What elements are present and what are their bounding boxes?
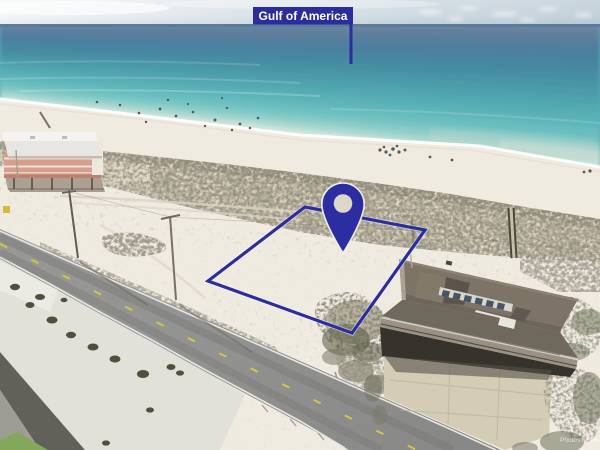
svg-text:Photos by BeachPro: Photos by BeachPro <box>560 437 600 444</box>
svg-text:Gulf of America: Gulf of America <box>259 9 348 23</box>
